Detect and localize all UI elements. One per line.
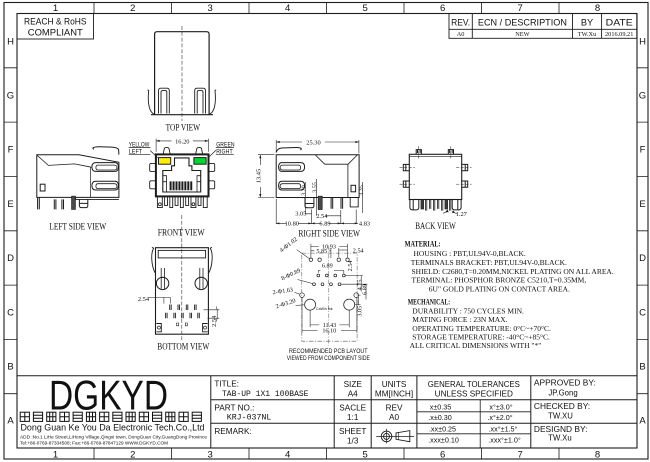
svg-text:2.54: 2.54 <box>316 213 328 220</box>
svg-text:3.05: 3.05 <box>356 306 363 317</box>
svg-text:UNITS: UNITS <box>382 380 407 389</box>
svg-text:LEFT SIDE VIEW: LEFT SIDE VIEW <box>49 223 106 233</box>
svg-text:DATE: DATE <box>606 18 633 28</box>
svg-text:10.80: 10.80 <box>285 221 299 228</box>
svg-text:1/3: 1/3 <box>347 436 359 445</box>
svg-text:COMPLIANT: COMPLIANT <box>28 28 83 39</box>
svg-text:6.89: 6.89 <box>322 262 333 269</box>
svg-text:2.54: 2.54 <box>211 315 218 327</box>
svg-text:MATING FORCE : 23N MAX.: MATING FORCE : 23N MAX. <box>412 315 507 324</box>
svg-text:GENERAL TOLERANCES: GENERAL TOLERANCES <box>428 380 521 389</box>
svg-text:REV.: REV. <box>451 18 470 28</box>
svg-text:TOP VIEW: TOP VIEW <box>166 124 201 134</box>
svg-text:HOUSING : PBT,UL94V-0,BLACK.: HOUSING : PBT,UL94V-0,BLACK. <box>414 249 526 258</box>
svg-text:TAB-UP 1X1 100BASE: TAB-UP 1X1 100BASE <box>222 390 309 399</box>
svg-text:KRJ-037NL: KRJ-037NL <box>227 414 272 423</box>
svg-text:SHIELD: C2680,T=0.20MM,NICKEL: SHIELD: C2680,T=0.20MM,NICKEL PLATING ON… <box>412 267 614 276</box>
svg-text:G: G <box>639 91 646 102</box>
svg-text:ECN / DESCRIPTION: ECN / DESCRIPTION <box>478 18 567 28</box>
svg-text:.xxx±0.10: .xxx±0.10 <box>428 435 459 444</box>
svg-text:6: 6 <box>440 3 445 14</box>
svg-text:B: B <box>639 362 645 373</box>
svg-text:3: 3 <box>208 449 213 460</box>
svg-text:1: 1 <box>53 3 58 14</box>
svg-text:3.05: 3.05 <box>295 211 306 218</box>
svg-text:SIZE: SIZE <box>344 380 363 389</box>
svg-text:TW.XU: TW.XU <box>548 412 573 421</box>
svg-text:6.89: 6.89 <box>319 221 330 228</box>
svg-text:x±0.35: x±0.35 <box>430 402 452 411</box>
svg-text:6: 6 <box>440 449 445 460</box>
svg-text:BACK VIEW: BACK VIEW <box>415 222 456 232</box>
svg-text:MECHANICAL:: MECHANICAL: <box>408 297 451 306</box>
svg-text:BOTTOM VIEW: BOTTOM VIEW <box>157 342 209 352</box>
svg-text:3: 3 <box>208 3 213 14</box>
svg-text:13.45: 13.45 <box>256 169 263 183</box>
svg-text:1:1: 1:1 <box>347 413 359 422</box>
svg-text:1.27: 1.27 <box>456 211 468 218</box>
svg-text:ALL CRITICAL DIMENSIONS WITH ": ALL CRITICAL DIMENSIONS WITH "*" <box>410 341 542 350</box>
svg-text:RECOMMENDED PCB LAYOUT: RECOMMENDED PCB LAYOUT <box>289 348 368 355</box>
svg-text:2.54: 2.54 <box>353 247 364 254</box>
svg-text:APPROVED BY:: APPROVED BY: <box>534 378 596 388</box>
svg-text:5.85: 5.85 <box>316 248 327 255</box>
svg-text:A: A <box>639 416 646 427</box>
svg-text:REACH & RoHS: REACH & RoHS <box>24 16 87 27</box>
svg-text:Tel:+86-0769-87334508; Fax:+86: Tel:+86-0769-87334508; Fax:+86-0769-8784… <box>20 440 168 445</box>
svg-text:.xx°±1.5°: .xx°±1.5° <box>489 425 518 434</box>
svg-text:5: 5 <box>363 449 368 460</box>
svg-text:3.20: 3.20 <box>302 185 308 196</box>
svg-text:MATERIAL:: MATERIAL: <box>405 240 441 249</box>
svg-text:25.30: 25.30 <box>306 139 320 146</box>
svg-text:3.35: 3.35 <box>359 185 365 196</box>
svg-text:x°±3.0°: x°±3.0° <box>489 402 512 411</box>
svg-text:A: A <box>7 416 14 427</box>
svg-text:4: 4 <box>285 449 290 460</box>
svg-text:TERMINALS BRACKET: PBT,UL94V-0: TERMINALS BRACKET: PBT,UL94V-0,BLACK. <box>411 258 567 267</box>
svg-text:SACLE: SACLE <box>339 403 366 412</box>
svg-text:TW.Xu: TW.Xu <box>578 31 597 38</box>
svg-text:DGKYD: DGKYD <box>49 372 168 419</box>
svg-text:G: G <box>7 91 14 102</box>
svg-text:BY: BY <box>581 18 593 28</box>
svg-text:6.89: 6.89 <box>361 284 368 295</box>
svg-text:STORAGE TEMPERATURE: -40°C~+85: STORAGE TEMPERATURE: -40°C~+85°C. <box>412 332 550 341</box>
svg-text:4.83: 4.83 <box>359 221 370 228</box>
svg-text:D: D <box>7 253 14 264</box>
svg-text:A0: A0 <box>457 31 465 38</box>
svg-text:NEW: NEW <box>515 31 529 38</box>
svg-text:16.10: 16.10 <box>322 328 336 335</box>
svg-text:UNLESS SPECIFIED: UNLESS SPECIFIED <box>435 389 513 398</box>
svg-text:Dong Guan Ke You Da Electronic: Dong Guan Ke You Da Electronic Tech.Co.,… <box>21 422 205 433</box>
svg-text:.x±0.30: .x±0.30 <box>428 413 452 422</box>
svg-text:PART NO.:: PART NO.: <box>214 403 254 412</box>
svg-text:8: 8 <box>595 449 600 460</box>
svg-text:JP.Gong: JP.Gong <box>548 388 577 397</box>
svg-text:3.55: 3.55 <box>313 182 319 193</box>
svg-text:REV: REV <box>386 403 403 412</box>
svg-text:7: 7 <box>517 3 522 14</box>
svg-text:MM[INCH]: MM[INCH] <box>375 389 413 398</box>
svg-text:2.54: 2.54 <box>138 296 150 303</box>
svg-text:16.20: 16.20 <box>175 138 189 145</box>
svg-text:SHEET: SHEET <box>339 427 366 436</box>
svg-text:.x°±2.0°: .x°±2.0° <box>487 413 512 422</box>
svg-text:H: H <box>639 37 646 48</box>
svg-text:TW.Xu: TW.Xu <box>548 434 571 443</box>
svg-text:DESIGND BY:: DESIGND BY: <box>534 424 588 434</box>
svg-text:TITLE:: TITLE: <box>214 380 239 389</box>
svg-text:5: 5 <box>363 3 368 14</box>
svg-text:A0: A0 <box>389 413 399 422</box>
svg-text:D: D <box>639 253 646 264</box>
svg-text:ADD :No.1 LiHe Street,LiHeng V: ADD :No.1 LiHe Street,LiHeng Village,Qin… <box>20 435 207 440</box>
svg-text:CHECKED BY:: CHECKED BY: <box>534 401 590 411</box>
svg-text:4: 4 <box>285 3 290 14</box>
svg-text:2.54: 2.54 <box>347 260 354 271</box>
svg-text:F: F <box>8 145 14 156</box>
svg-text:.xxx°±1.0°: .xxx°±1.0° <box>488 435 521 444</box>
svg-text:1: 1 <box>53 449 58 460</box>
svg-text:E: E <box>7 199 13 210</box>
svg-text:RIGHT: RIGHT <box>216 148 233 155</box>
svg-text:F: F <box>640 145 646 156</box>
svg-text:CaWin Ink: CaWin Ink <box>316 307 333 311</box>
svg-text:6U" GOLD PLATING ON CONTACT AR: 6U" GOLD PLATING ON CONTACT AREA. <box>429 285 570 294</box>
svg-text:LEFT: LEFT <box>129 148 143 155</box>
svg-text:2: 2 <box>130 3 135 14</box>
svg-text:C: C <box>7 308 14 319</box>
svg-text:H: H <box>7 37 14 48</box>
svg-text:RIGHT SIDE VIEW: RIGHT SIDE VIEW <box>298 229 360 239</box>
svg-text:VIEWED FROM COMPONENT SIDE: VIEWED FROM COMPONENT SIDE <box>287 355 370 362</box>
svg-text:2: 2 <box>130 449 135 460</box>
svg-text:TERMINAL: PHOSPHOR BRONZE C521: TERMINAL: PHOSPHOR BRONZE C5210,T=0.35MM… <box>412 276 587 285</box>
svg-text:B: B <box>7 362 13 373</box>
svg-text:A4: A4 <box>348 389 358 398</box>
svg-text:C: C <box>639 308 646 319</box>
svg-text:8: 8 <box>595 3 600 14</box>
svg-text:E: E <box>639 199 645 210</box>
svg-text:7: 7 <box>517 449 522 460</box>
svg-text:REMARK:: REMARK: <box>214 427 251 436</box>
svg-text:2016.09.21: 2016.09.21 <box>605 31 633 38</box>
svg-text:.xx±0.25: .xx±0.25 <box>429 425 456 434</box>
svg-text:FRONT VIEW: FRONT VIEW <box>158 229 205 239</box>
